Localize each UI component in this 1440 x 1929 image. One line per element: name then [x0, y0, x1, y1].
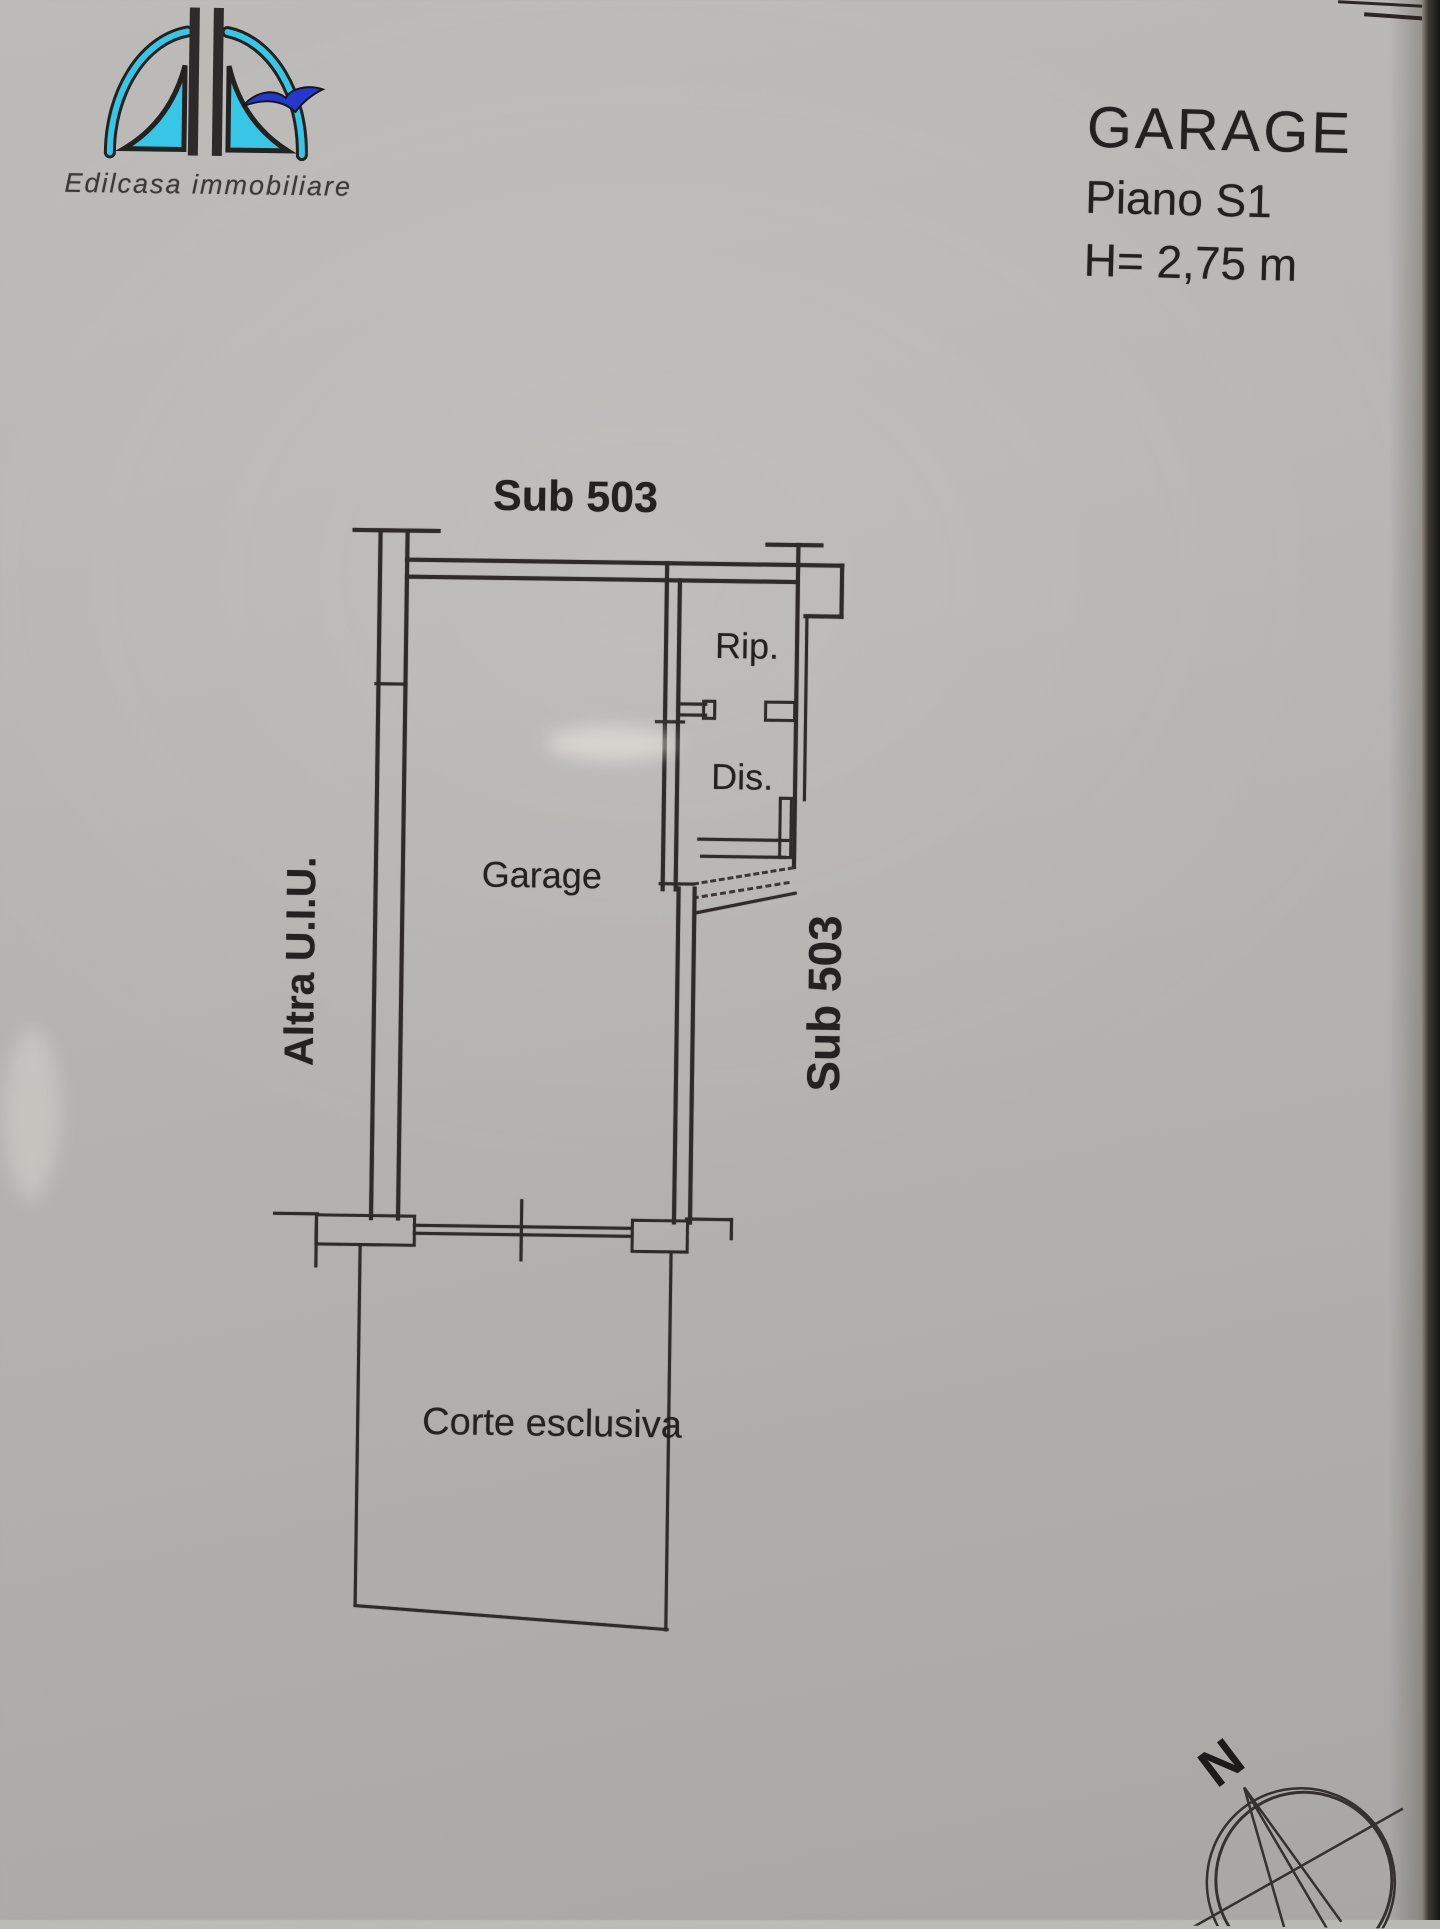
- wall-segment: [405, 558, 844, 568]
- label-sub503-right: Sub 503: [796, 915, 852, 1092]
- compass-circle: [1215, 1791, 1393, 1929]
- compass-rose: N: [1133, 1693, 1428, 1929]
- wall-segment: [314, 1215, 318, 1267]
- label-altra-uiu: Altra U.I.U.: [276, 856, 326, 1066]
- wall-segment: [672, 886, 681, 1224]
- wall-segment: [697, 838, 789, 842]
- scan-edge-strip: [1422, 0, 1440, 1920]
- wall-segment: [700, 855, 786, 859]
- wall-segment: [519, 1199, 523, 1261]
- compass-circle-outer: [1206, 1787, 1397, 1929]
- scan-edge-shadow: [1388, 0, 1422, 1920]
- wall-segment: [796, 543, 801, 583]
- wall-segment: [661, 561, 670, 891]
- wall-segment: [765, 543, 823, 548]
- door-jamb: [702, 700, 716, 720]
- wall-segment: [273, 1212, 319, 1216]
- court-boundary: [354, 1244, 362, 1606]
- wall-segment: [685, 1218, 733, 1222]
- wall-segment: [659, 882, 695, 886]
- wall-segment: [688, 887, 697, 1225]
- wall-segment: [369, 530, 383, 1220]
- wall-pier: [631, 1219, 689, 1254]
- wall-segment: [839, 564, 844, 619]
- wall-segment: [730, 1218, 733, 1240]
- door-leaf: [778, 797, 793, 859]
- label-dis: Dis.: [711, 756, 774, 799]
- label-corte-esclusiva: Corte esclusiva: [422, 1401, 682, 1448]
- wall-segment: [374, 682, 407, 685]
- label-sub503-top: Sub 503: [493, 472, 659, 523]
- compass-needle: [1242, 1787, 1343, 1929]
- wall-segment: [792, 583, 800, 869]
- wall-segment: [353, 528, 441, 533]
- wall-pier: [315, 1213, 416, 1246]
- court-boundary: [353, 1604, 668, 1631]
- wall-segment: [655, 720, 685, 723]
- wall-segment: [803, 617, 809, 801]
- wall-segment: [405, 575, 799, 585]
- floor-plan: Sub 503: [0, 0, 1440, 1929]
- scan-content: Edilcasa immobiliare GARAGE Piano S1 H= …: [0, 0, 1440, 1929]
- label-rip: Rip.: [715, 625, 780, 668]
- wall-segment: [396, 531, 410, 1221]
- label-garage: Garage: [482, 854, 603, 898]
- door-jamb: [764, 701, 796, 722]
- wall-segment: [803, 614, 843, 619]
- wall-segment: [674, 578, 682, 891]
